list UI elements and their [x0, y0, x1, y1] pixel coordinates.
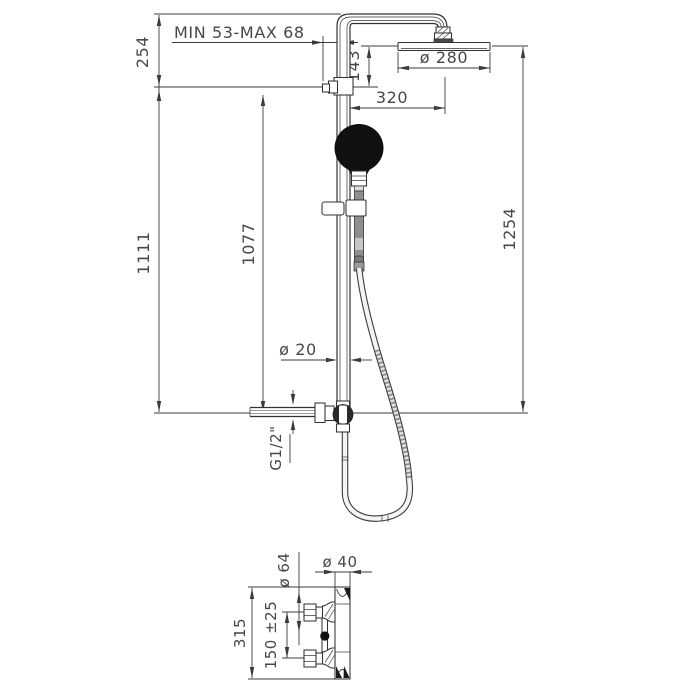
dim-20-label: ø 20: [279, 340, 317, 359]
dim-1254: 1254: [500, 47, 525, 412]
detail-inlet-bottom: [304, 648, 335, 668]
dim-64-label: ø 64: [275, 552, 293, 587]
hand-shower-neck: [352, 171, 367, 186]
dim-254-label: 254: [133, 36, 152, 68]
overhead-shower-head: [398, 27, 490, 51]
dim-150: 150 ±25: [262, 601, 289, 670]
valve-flange: [315, 403, 325, 423]
dim-1077: 1077: [239, 95, 265, 412]
dim-254-and-1111: 254 1111: [133, 15, 161, 412]
mixer-valve: [250, 401, 353, 432]
detail-view: 315 ø 40 ø 64 150 ±25: [231, 552, 372, 679]
dim-40: ø 40: [315, 553, 372, 574]
technical-drawing-page: 254 1111 1077 143 1254 MIN 53-MAX 68 ø 2…: [0, 0, 700, 700]
dim-min-max: MIN 53-MAX 68: [172, 23, 358, 45]
dim-40-label: ø 40: [322, 553, 357, 571]
detail-screw-dot: [320, 631, 329, 640]
dim-min-max-label: MIN 53-MAX 68: [174, 23, 305, 42]
wall-bracket: [323, 78, 354, 96]
dim-320-label: 320: [376, 88, 408, 107]
dim-g12: G1/2": [267, 390, 295, 471]
dim-1111-label: 1111: [134, 231, 153, 274]
dim-1077-label: 1077: [239, 222, 258, 265]
dim-280: ø 280: [398, 48, 490, 70]
dim-150-label: 150 ±25: [262, 601, 280, 670]
shower-system-drawing: 254 1111 1077 143 1254 MIN 53-MAX 68 ø 2…: [0, 0, 700, 700]
hand-shower-collar: [355, 186, 364, 191]
dim-1254-label: 1254: [500, 207, 519, 250]
dim-320: 320: [349, 88, 445, 110]
detail-inlet-top: [304, 602, 335, 622]
dim-315-label: 315: [231, 618, 249, 648]
dim-20: ø 20: [279, 340, 372, 362]
dim-g12-label: G1/2": [267, 425, 285, 470]
dim-315: 315: [231, 588, 254, 678]
shower-hose: [342, 262, 410, 522]
head-disc: [398, 43, 490, 51]
detail-body: [335, 587, 350, 679]
valve-nut: [325, 406, 334, 421]
